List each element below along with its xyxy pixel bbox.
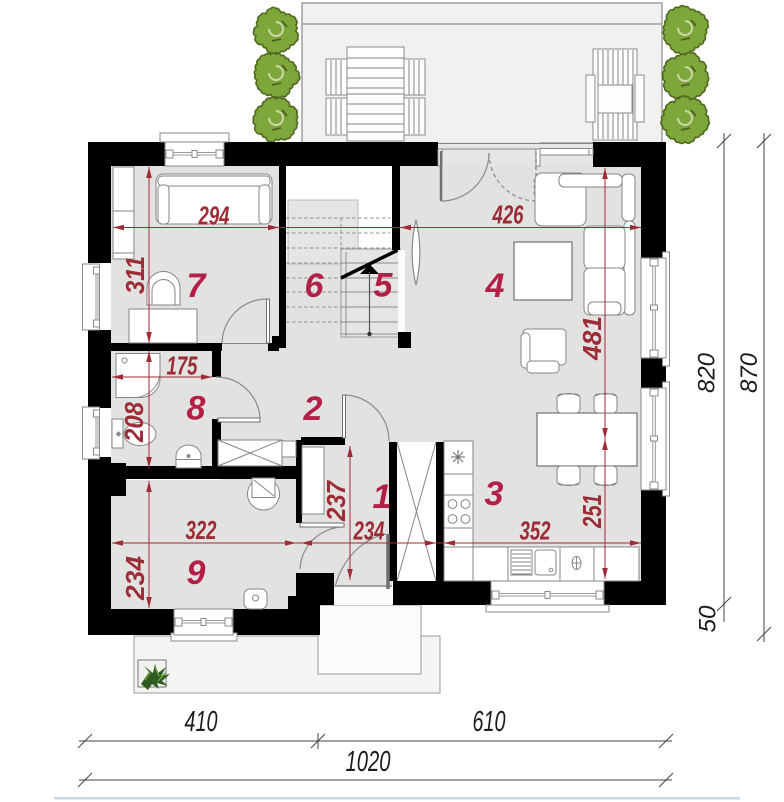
- svg-text:820: 820: [694, 353, 721, 393]
- svg-text:50: 50: [695, 605, 722, 632]
- svg-text:410: 410: [185, 706, 218, 738]
- svg-text:352: 352: [520, 516, 551, 546]
- svg-text:9: 9: [187, 554, 206, 592]
- svg-text:234: 234: [353, 516, 385, 546]
- svg-text:7: 7: [187, 267, 208, 305]
- svg-text:426: 426: [492, 200, 524, 230]
- svg-text:610: 610: [473, 706, 506, 738]
- svg-text:3: 3: [485, 475, 504, 513]
- svg-text:294: 294: [198, 201, 230, 231]
- svg-text:251: 251: [577, 494, 607, 529]
- svg-text:1: 1: [373, 478, 392, 516]
- svg-text:175: 175: [167, 351, 198, 381]
- svg-text:481: 481: [577, 316, 607, 361]
- svg-text:8: 8: [187, 390, 206, 428]
- svg-text:322: 322: [186, 515, 217, 545]
- svg-text:6: 6: [305, 267, 325, 305]
- svg-text:870: 870: [736, 353, 763, 393]
- svg-text:1020: 1020: [346, 746, 391, 778]
- svg-text:237: 237: [321, 480, 351, 522]
- svg-text:5: 5: [374, 267, 394, 305]
- svg-text:311: 311: [120, 256, 150, 294]
- svg-text:2: 2: [303, 390, 323, 428]
- svg-text:234: 234: [120, 555, 150, 601]
- svg-text:208: 208: [119, 402, 149, 443]
- svg-text:4: 4: [485, 267, 505, 305]
